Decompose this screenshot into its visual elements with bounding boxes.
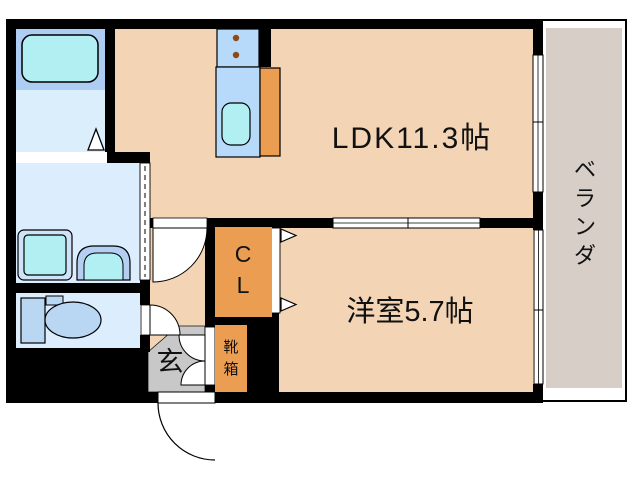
wall-washroom-door-stub	[140, 280, 150, 293]
veranda-line-bottom	[543, 400, 627, 402]
kitchen-stove	[217, 29, 259, 67]
veranda-line-right	[625, 19, 627, 402]
washbasin-bowl	[84, 253, 123, 280]
closet-door-strip	[271, 228, 280, 313]
wall-right-bottom	[533, 384, 543, 403]
wall-toilet-right-lower	[140, 335, 150, 352]
entrance-label: 玄	[157, 347, 184, 377]
wall-washroom-toilet	[6, 283, 148, 293]
veranda-label-char: ベ	[574, 157, 596, 182]
wall-mass-bottom-left	[6, 348, 148, 403]
entrance-door-swing	[158, 403, 215, 460]
wall-kitchen-stub	[259, 29, 271, 67]
ldk-label: LDK11.3帖	[332, 122, 493, 155]
veranda-label-char: ダ	[574, 243, 596, 268]
veranda-line-top	[543, 19, 627, 21]
entrance-door-opening	[158, 392, 215, 403]
wall-right-top	[533, 19, 543, 55]
western-room-label: 洋室5.7帖	[346, 295, 473, 328]
burner-icon	[233, 52, 239, 58]
shoebox-door-strip	[205, 327, 215, 385]
burner-icon	[233, 35, 239, 41]
kitchen-counter	[260, 68, 280, 156]
toilet-tank	[21, 298, 45, 343]
wall-closet-shoebox-gap	[215, 317, 247, 325]
floor-plan-page: LDK11.3帖 洋室5.7帖 ベ ラ ン ダ C L 玄 靴 箱	[0, 0, 638, 480]
shoebox-label-char: 靴	[223, 339, 238, 356]
wall-bathroom-washroom	[105, 152, 150, 163]
closet-label-char: C	[235, 241, 252, 267]
wall-left	[6, 19, 16, 403]
wall-bathroom-right	[105, 29, 115, 152]
wall-mass-shoebox-right	[247, 313, 279, 392]
floor-plan-svg: LDK11.3帖 洋室5.7帖 ベ ラ ン ダ C L 玄 靴 箱	[0, 0, 638, 480]
veranda-label-char: ラ	[574, 186, 596, 211]
veranda-label-char: ン	[574, 214, 596, 239]
closet-label-char: L	[237, 272, 250, 298]
wall-above-shoebox-door	[205, 318, 215, 327]
bathtub	[22, 35, 98, 82]
shoebox-block	[215, 325, 247, 392]
wall-top	[6, 19, 543, 29]
wall-below-shoebox-door	[205, 385, 215, 392]
shoebox-label-char: 箱	[223, 361, 238, 378]
kitchen-sink-basin	[222, 103, 250, 145]
washing-machine-pan-inner	[24, 235, 66, 275]
bathroom-door-opening	[48, 152, 107, 163]
wall-toilet-right-upper	[140, 293, 150, 305]
toilet-door-leaf	[141, 305, 150, 335]
toilet-bowl	[45, 302, 101, 338]
hallway-door-leaf	[153, 218, 207, 228]
